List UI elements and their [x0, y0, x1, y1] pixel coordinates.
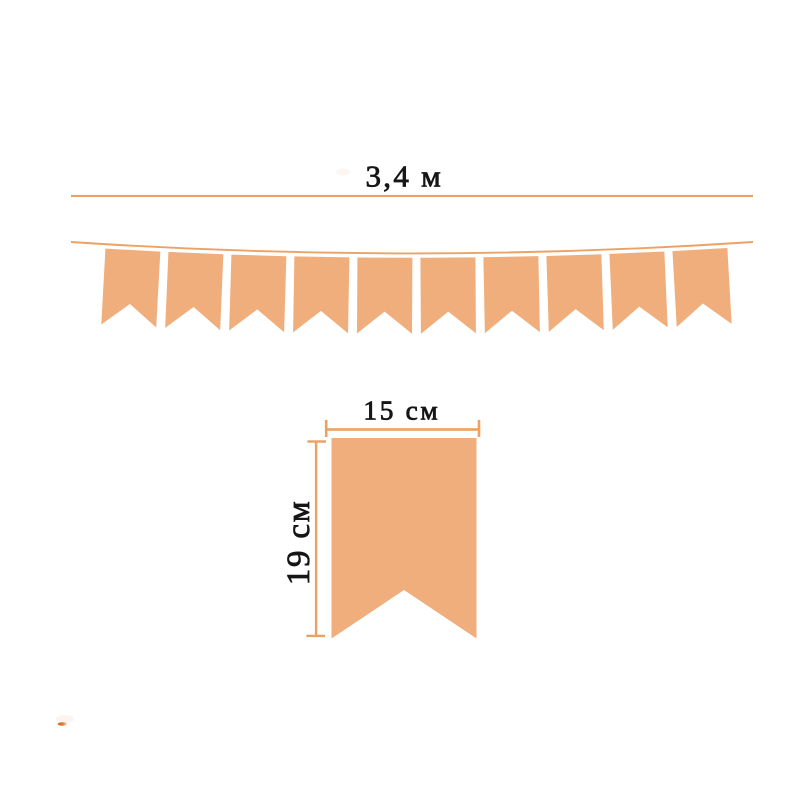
svg-text:19 см: 19 см: [281, 500, 317, 586]
svg-text:3,4 м: 3,4 м: [365, 159, 443, 194]
svg-text:15 см: 15 см: [363, 396, 440, 426]
